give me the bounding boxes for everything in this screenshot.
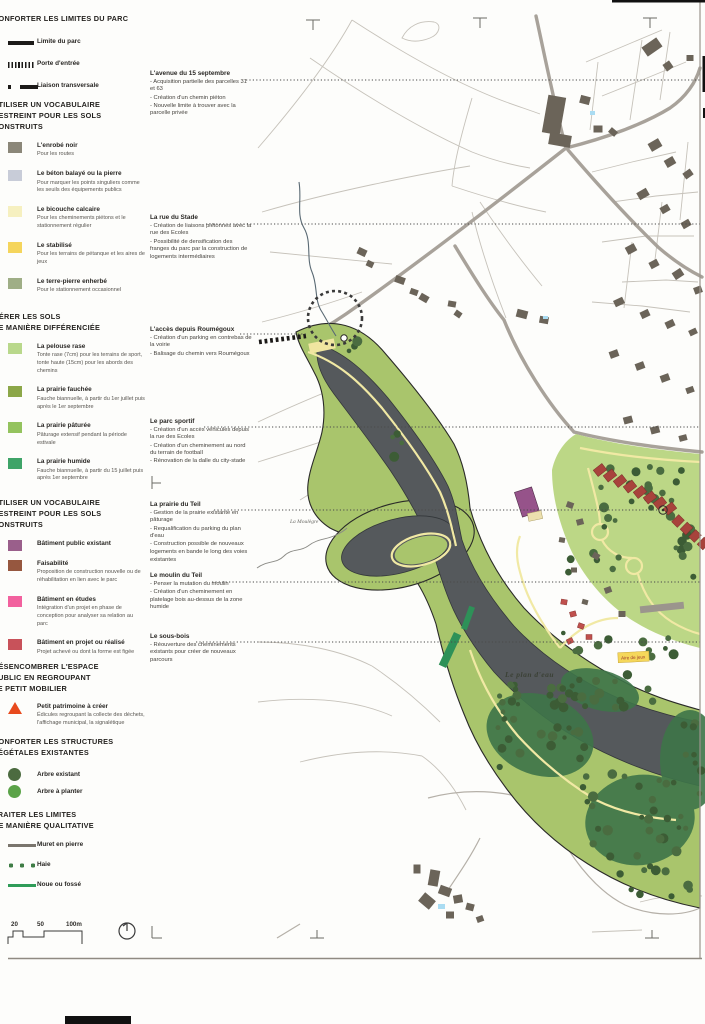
water-label: Le plan d'eau (504, 670, 554, 679)
legend-section-mobilier: DÉSENCOMBRER L'ESPACE PUBLIC EN REGROUPA… (0, 662, 145, 728)
annotation-title: Le parc sportif (150, 418, 252, 426)
scale-50: 50 (37, 921, 44, 928)
terre-pierre-swatch (8, 278, 22, 289)
annotation-title: L'avenue du 15 septembre (150, 70, 252, 78)
section-title: DÉSENCOMBRER L'ESPACE PUBLIC EN REGROUPA… (0, 662, 145, 695)
muret-swatch (8, 844, 36, 847)
legend-item: Bâtiment public existant (0, 540, 145, 549)
legend-item: Le béton balayé ou la pierre Pour marque… (0, 170, 145, 195)
legend-item: La prairie pâturée Pâturage extensif pen… (0, 422, 145, 447)
arbre-existant-swatch (8, 768, 21, 781)
legend-item: La pelouse rase Tonte rase (7cm) pour le… (0, 343, 145, 376)
annotation-avenue-15-septembre: L'avenue du 15 septembre - Acquisition p… (150, 70, 252, 118)
playground-chip: Aire de jeux (618, 651, 649, 663)
haie-swatch (8, 863, 38, 868)
arbre-a-planter-swatch (8, 785, 21, 798)
petit-patrimoine-triangle-swatch (8, 702, 22, 714)
legend-item: Arbre à planter (0, 785, 145, 795)
legend-item: Le bicouche calcaire Pour les cheminemen… (0, 206, 145, 231)
annotation-title: Le moulin du Teil (150, 572, 252, 580)
stabilise-swatch (8, 242, 22, 253)
transversal-link-swatch (8, 85, 38, 89)
legend-item: Muret en pierre (0, 841, 145, 850)
legend-section-limites-qualitatives: TRAITER LES LIMITES DE MANIÈRE QUALITATI… (0, 810, 145, 890)
small-red-buildings (561, 599, 592, 645)
road-rue-du-stade (455, 246, 574, 432)
scanned-park-plan-page: { "legend": { "sections": [ { "title": "… (0, 0, 705, 1024)
entrance-node (341, 335, 347, 341)
entrance-gate-swatch (8, 62, 35, 68)
prairie-paturee-swatch (8, 422, 22, 433)
legend-item: Le stabilisé Pour les terrains de pétanq… (0, 242, 145, 267)
legend-item: Bâtiment en études Intégration d'un proj… (0, 596, 145, 629)
batiment-etudes-swatch (8, 596, 22, 607)
legend-section-batiments: UTILISER UN VOCABULAIRE RESTREINT POUR L… (0, 498, 145, 656)
legend-item: Haie (0, 861, 145, 870)
scale-100: 100m (66, 921, 82, 928)
annotation-moulin-du-teil: Le moulin du Teil - Penser la mutation d… (150, 572, 252, 612)
annotation-title: La rue du Stade (150, 214, 252, 222)
prairie-fauchee-swatch (8, 386, 22, 397)
legend-item: Porte d'entrée (0, 60, 145, 69)
faisabilite-swatch (8, 560, 22, 571)
scan-bar-bottom (65, 1016, 131, 1024)
legend-item: Faisabilité Proposition de construction … (0, 560, 145, 585)
public-building-moulin (514, 487, 542, 522)
north-arrow (119, 923, 135, 939)
annotation-title: La prairie du Teil (150, 501, 252, 509)
legend-item: La prairie fauchée Fauche biannuelle, à … (0, 386, 145, 411)
section-title: CONFORTER LES LIMITES DU PARC (0, 14, 145, 25)
scan-bar-top (612, 0, 705, 3)
prairie-humide-swatch (8, 458, 22, 469)
bicouche-swatch (8, 206, 22, 217)
legend-item: L'enrobé noir Pour les routes (0, 142, 145, 159)
road-southeast (568, 150, 702, 277)
section-title: TRAITER LES LIMITES DE MANIÈRE QUALITATI… (0, 810, 145, 832)
legend-item: Arbre existant (0, 768, 145, 778)
annotation-parc-sportif: Le parc sportif - Création d'un accès vé… (150, 418, 252, 466)
legend-item: Bâtiment en projet ou réalisé Projet ach… (0, 639, 145, 656)
stream-label: La Moulègre (289, 519, 319, 525)
noue-swatch (8, 884, 36, 887)
batiment-public-swatch (8, 540, 22, 551)
section-title: CONFORTER LES STRUCTURES VÉGÉTALES EXIST… (0, 737, 145, 759)
legend-item: Petit patrimoine à créer Édicules regrou… (0, 703, 145, 728)
annotation-sous-bois: Le sous-bois - Réouverture des chemineme… (150, 633, 252, 665)
annotation-acces-roumegoux: L'accès depuis Roumégoux - Création d'un… (150, 326, 252, 358)
legend-item: Liaison transversale (0, 82, 145, 91)
legend-item: Le terre-pierre enherbé Pour le stationn… (0, 278, 145, 295)
scale-bar: 20 50 100m (8, 921, 82, 944)
park-limit-line-swatch (8, 41, 34, 45)
annotation-prairie-du-teil: La prairie du Teil - Gestion de la prair… (150, 501, 252, 564)
legend-section-vegetal: CONFORTER LES STRUCTURES VÉGÉTALES EXIST… (0, 737, 145, 795)
legend-section-gestion-sols: GÉRER LES SOLS DE MANIÈRE DIFFÉRENCIÉE L… (0, 312, 145, 483)
section-title: GÉRER LES SOLS DE MANIÈRE DIFFÉRENCIÉE (0, 312, 145, 334)
section-title: UTILISER UN VOCABULAIRE RESTREINT POUR L… (0, 100, 145, 133)
legend-section-limites: CONFORTER LES LIMITES DU PARC Limite du … (0, 14, 145, 91)
batiment-projet-swatch (8, 639, 22, 650)
road-to-entrance (303, 148, 566, 339)
legend-item: La prairie humide Fauche biannuelle, à p… (0, 458, 145, 483)
legend-item: Limite du parc (0, 38, 145, 47)
annotation-title: L'accès depuis Roumégoux (150, 326, 252, 334)
enrobe-swatch (8, 142, 22, 153)
section-title: UTILISER UN VOCABULAIRE RESTREINT POUR L… (0, 498, 145, 531)
beton-swatch (8, 170, 22, 181)
legend-item: Noue ou fossé (0, 881, 145, 890)
pelouse-swatch (8, 343, 22, 354)
scale-20: 20 (11, 921, 18, 928)
stream-north (299, 182, 336, 336)
annotation-rue-du-stade: La rue du Stade - Création de liaisons p… (150, 214, 252, 262)
annotation-title: Le sous-bois (150, 633, 252, 641)
legend-section-sols-construits: UTILISER UN VOCABULAIRE RESTREINT POUR L… (0, 100, 145, 295)
